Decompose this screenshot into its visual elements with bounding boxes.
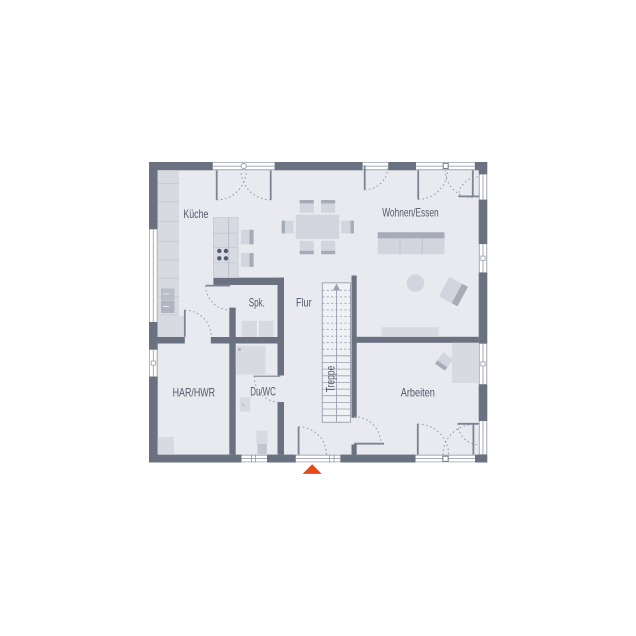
svg-text:Treppe: Treppe <box>326 366 338 393</box>
svg-text:Küche: Küche <box>183 207 208 221</box>
svg-text:Du/WC: Du/WC <box>250 385 276 399</box>
svg-text:Arbeiten: Arbeiten <box>401 386 435 400</box>
svg-text:Wohnen/Essen: Wohnen/Essen <box>382 206 439 220</box>
svg-text:Spk.: Spk. <box>249 296 265 310</box>
svg-text:HAR/HWR: HAR/HWR <box>173 385 216 399</box>
svg-text:Flur: Flur <box>296 296 312 310</box>
